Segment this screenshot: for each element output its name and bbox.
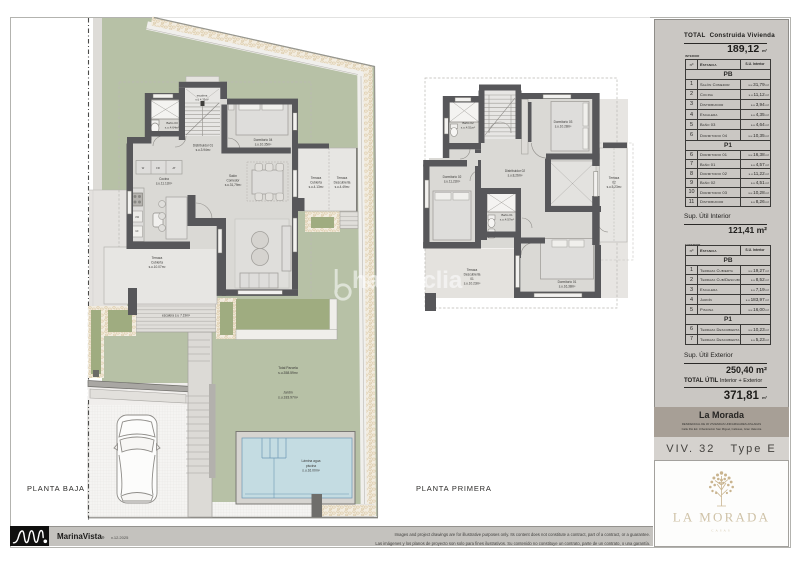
svg-text:s.u.11.12m²: s.u.11.12m² xyxy=(156,182,172,186)
svg-text:s.u.10.35m²: s.u.10.35m² xyxy=(255,143,272,147)
svg-text:s.u.4.13m²: s.u.4.13m² xyxy=(309,185,324,189)
svg-text:escalera s.u 7.19m²: escalera s.u 7.19m² xyxy=(162,314,190,318)
svg-text:s.u.4.49m²: s.u.4.49m² xyxy=(335,185,350,189)
svg-text:s.u.183.97m²: s.u.183.97m² xyxy=(278,396,299,400)
svg-text:s.u.11,22m²: s.u.11,22m² xyxy=(444,180,460,184)
svg-text:Terraza: Terraza xyxy=(467,268,478,272)
svg-text:s.u.31,79m²: s.u.31,79m² xyxy=(225,183,242,187)
svg-text:Dormitorio 02: Dormitorio 02 xyxy=(443,175,462,179)
svg-text:Total Parcela: Total Parcela xyxy=(278,366,298,370)
svg-text:CASAS: CASAS xyxy=(711,529,731,533)
svg-text:s.u.358.59m²: s.u.358.59m² xyxy=(278,371,299,375)
svg-text:s.u.10.28m²: s.u.10.28m² xyxy=(555,125,572,129)
svg-text:Terraza: Terraza xyxy=(152,256,163,260)
svg-text:Descubierta: Descubierta xyxy=(464,273,481,277)
svg-text:Comedor: Comedor xyxy=(227,179,240,183)
svg-text:s.u.4.51m²: s.u.4.51m² xyxy=(461,126,475,130)
svg-text:Dormitorio 01: Dormitorio 01 xyxy=(558,280,577,284)
svg-text:Jardín: Jardín xyxy=(283,391,293,395)
svg-text:habitaclia: habitaclia xyxy=(352,267,463,294)
svg-text:Cubierta: Cubierta xyxy=(151,261,163,265)
svg-text:s.u.3.94m²: s.u.3.94m² xyxy=(196,148,211,152)
svg-text:s.u.5,23m²: s.u.5,23m² xyxy=(607,185,622,189)
svg-text:PLANTA BAJA: PLANTA BAJA xyxy=(27,484,85,493)
svg-text:s.u.4.57m²: s.u.4.57m² xyxy=(500,218,514,222)
svg-text:FR: FR xyxy=(156,166,160,170)
svg-text:PLANTA PRIMERA: PLANTA PRIMERA xyxy=(416,484,492,493)
svg-text:LA MORADA: LA MORADA xyxy=(673,510,770,525)
svg-text:Terraza: Terraza xyxy=(337,176,348,180)
svg-text:01: 01 xyxy=(470,277,474,281)
svg-text:s.u.8,26m²: s.u.8,26m² xyxy=(508,174,523,178)
svg-text:Distribuidor 02: Distribuidor 02 xyxy=(505,169,526,173)
svg-text:Distribuidor 01: Distribuidor 01 xyxy=(193,144,214,148)
svg-text:s.u.4.64m²: s.u.4.64m² xyxy=(165,126,179,130)
svg-text:Baño 01: Baño 01 xyxy=(501,213,513,217)
svg-text:s.u.16.00m²: s.u.16.00m² xyxy=(302,469,320,473)
svg-text:Cocina: Cocina xyxy=(159,177,169,181)
svg-text:s.u 4.35m²: s.u 4.35m² xyxy=(195,98,208,102)
svg-text:02: 02 xyxy=(612,181,616,185)
svg-text:Cubierta: Cubierta xyxy=(310,181,322,185)
svg-text:Baño 02: Baño 02 xyxy=(462,121,474,125)
svg-text:Dormitorio 03: Dormitorio 03 xyxy=(554,120,573,124)
svg-text:Terraza: Terraza xyxy=(311,176,322,180)
svg-text:Baño 03: Baño 03 xyxy=(166,121,178,125)
svg-text:AT: AT xyxy=(172,166,176,170)
svg-text:Salón: Salón xyxy=(229,174,237,178)
svg-text:s.u.10.23m²: s.u.10.23m² xyxy=(464,282,481,286)
svg-text:s.u.16,38m²: s.u.16,38m² xyxy=(559,285,576,289)
svg-text:piscina: piscina xyxy=(306,464,316,468)
svg-text:Lámina agua: Lámina agua xyxy=(301,459,320,463)
svg-text:Terraza: Terraza xyxy=(609,176,620,180)
svg-text:Dormitorio 04: Dormitorio 04 xyxy=(254,138,273,142)
svg-text:Descubierta: Descubierta xyxy=(334,181,351,185)
svg-text:UF: UF xyxy=(135,230,139,233)
svg-text:s.u.10.07m²: s.u.10.07m² xyxy=(149,265,166,269)
